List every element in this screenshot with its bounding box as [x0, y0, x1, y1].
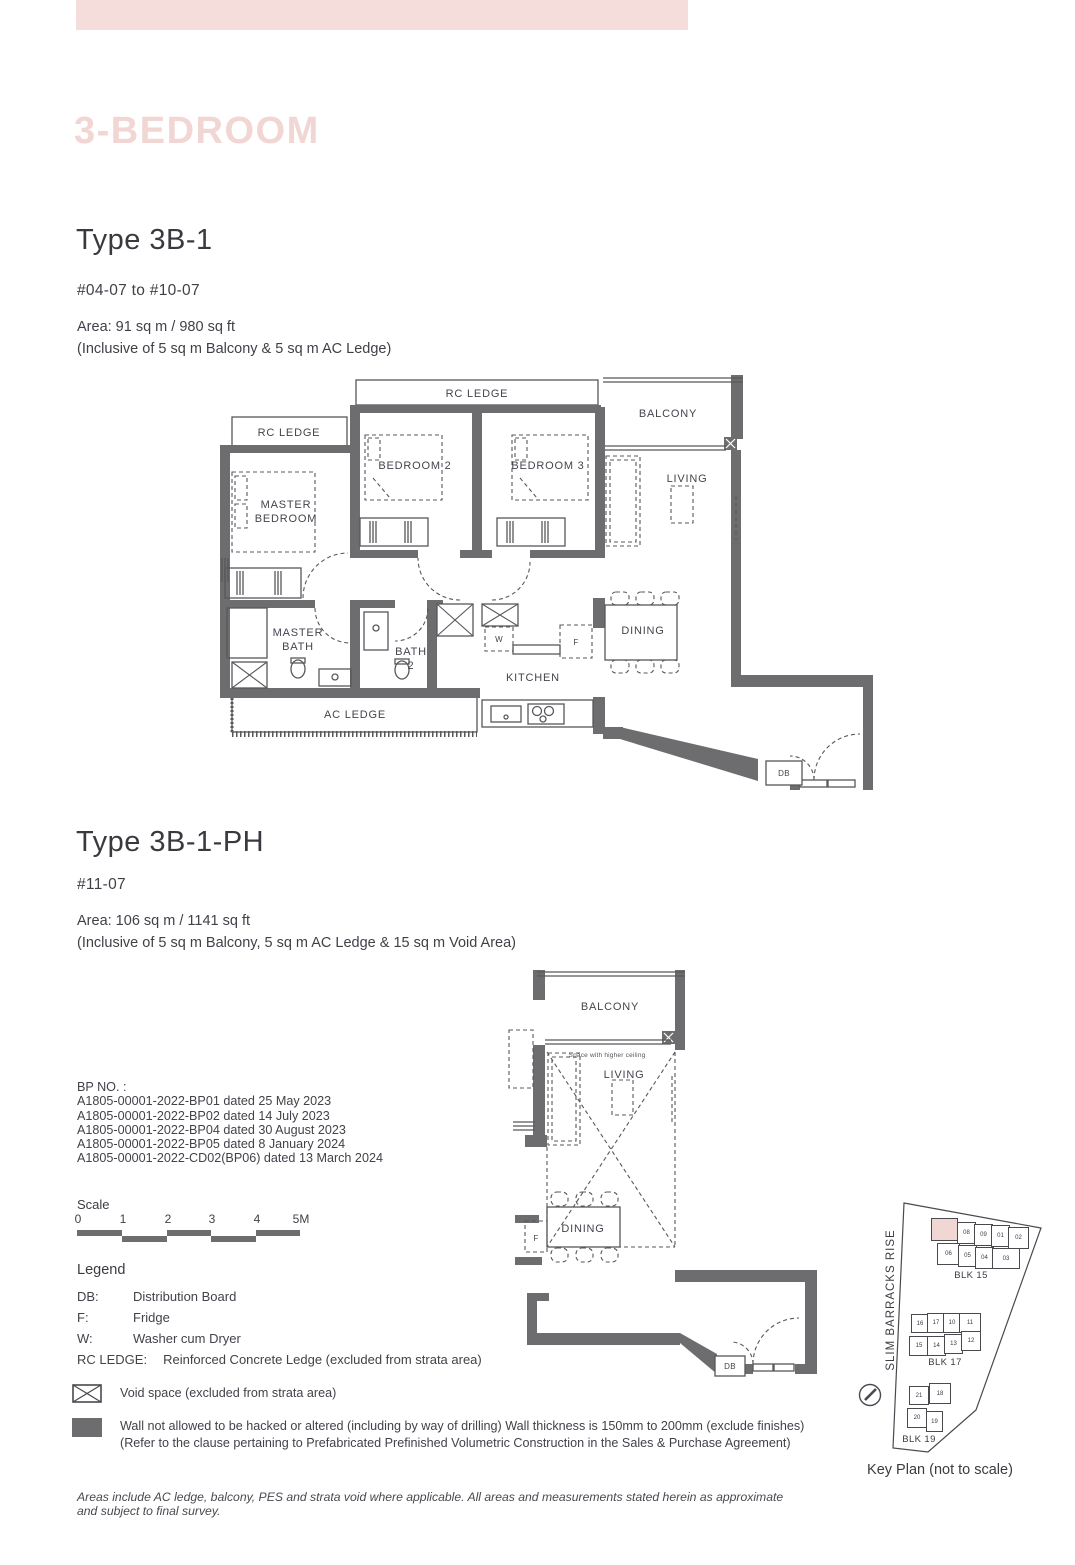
header-accent-band: [76, 0, 688, 30]
legend-heading: Legend: [77, 1262, 482, 1278]
unit2-type-title: Type 3B-1-PH: [76, 826, 264, 859]
footer-disclaimer: Areas include AC ledge, balcony, PES and…: [77, 1490, 797, 1518]
plan1-label-dining: DINING: [621, 625, 664, 637]
plan2-labels: BALCONY Space with higher ceiling LIVING…: [533, 1001, 735, 1371]
bp-list: BP NO. : A1805-00001-2022-BP01 dated 25 …: [77, 1080, 383, 1166]
unit1-levels: #04-07 to #10-07: [77, 282, 200, 300]
keyplan-street-label: SLIM BARRACKS RISE: [885, 1205, 903, 1395]
unit1-type-title: Type 3B-1: [76, 224, 213, 257]
plan2-windows: [513, 972, 794, 1371]
unit2-area-line2: (Inclusive of 5 sq m Balcony, 5 sq m AC …: [77, 932, 516, 954]
plan1-label-mbath2: BATH: [282, 641, 314, 653]
plan1-label-kitchen: KITCHEN: [506, 672, 560, 684]
unit1-area-line1: Area: 91 sq m / 980 sq ft: [77, 316, 391, 338]
bp-item: A1805-00001-2022-BP02 dated 14 July 2023: [77, 1109, 383, 1123]
bp-item: A1805-00001-2022-BP04 dated 30 August 20…: [77, 1123, 383, 1137]
plan1-label-rc-ledge-top: RC LEDGE: [446, 388, 509, 400]
scale-tick: 3: [199, 1212, 225, 1226]
wall-note-text: Wall not allowed to be hacked or altered…: [120, 1418, 804, 1452]
keyplan-unit: 03: [992, 1248, 1020, 1269]
wall-note-line1: Wall not allowed to be hacked or altered…: [120, 1418, 804, 1435]
scale-segment: [256, 1230, 300, 1236]
void-space-icon: [72, 1384, 102, 1403]
void-note-row: Void space (excluded from strata area): [72, 1384, 336, 1403]
floorplan-3b1-ph: BALCONY Space with higher ceiling LIVING…: [495, 960, 845, 1400]
keyplan-blk19-label: BLK 19: [891, 1434, 947, 1445]
plan1-label-ac-ledge: AC LEDGE: [324, 709, 386, 721]
keyplan-blk15-label: BLK 15: [943, 1270, 999, 1281]
legend-row: W: Washer cum Dryer: [77, 1328, 482, 1349]
legend-row: DB: Distribution Board: [77, 1286, 482, 1307]
plan1-label-washer: W: [495, 635, 503, 644]
plan1-label-db: DB: [778, 769, 790, 778]
scale-tick: 4: [244, 1212, 270, 1226]
keyplan-unit: 06: [937, 1243, 960, 1265]
plan2-walls: [515, 970, 817, 1374]
scale-segment: [77, 1230, 122, 1236]
plan1-label-rc-ledge-left: RC LEDGE: [258, 427, 321, 439]
legend-value: Reinforced Concrete Ledge (excluded from…: [163, 1349, 482, 1370]
plan1-label-fridge: F: [573, 638, 578, 647]
plan1-label-bedroom3: BEDROOM 3: [511, 460, 584, 472]
scale-bar: Scale 0 1 2 3 4 5M: [77, 1197, 397, 1247]
plan1-void-boxes: [232, 604, 518, 688]
scale-segment: [122, 1236, 167, 1242]
keyplan-caption: Key Plan (not to scale): [855, 1462, 1025, 1478]
scale-segment: [211, 1236, 256, 1242]
legend: Legend DB: Distribution Board F: Fridge …: [77, 1262, 482, 1370]
wall-note-line2: (Refer to the clause pertaining to Prefa…: [120, 1435, 804, 1452]
plan1-label-mbath1: MASTER: [273, 627, 324, 639]
plan1-label-bath2a: BATH: [395, 646, 427, 658]
scale-tick: 0: [65, 1212, 91, 1226]
scale-segment: [167, 1230, 211, 1236]
unit2-area-line1: Area: 106 sq m / 1141 sq ft: [77, 910, 516, 932]
legend-row: F: Fridge: [77, 1307, 482, 1328]
plan2-label-living: LIVING: [604, 1069, 645, 1081]
north-arrow-icon: [857, 1382, 883, 1408]
keyplan-unit: 11: [959, 1313, 981, 1333]
legend-value: Distribution Board: [133, 1286, 236, 1307]
legend-value: Washer cum Dryer: [133, 1328, 241, 1349]
keyplan-unit: 19: [926, 1411, 943, 1432]
unit1-area-line2: (Inclusive of 5 sq m Balcony & 5 sq m AC…: [77, 338, 391, 360]
legend-key: DB:: [77, 1286, 133, 1307]
plan2-label-fridge: F: [533, 1234, 538, 1243]
scale-tick: 1: [110, 1212, 136, 1226]
scale-tick: 2: [155, 1212, 181, 1226]
plan1-label-balcony: BALCONY: [639, 408, 697, 420]
plan2-label-db: DB: [724, 1362, 736, 1371]
scale-label: Scale: [77, 1197, 397, 1212]
bp-heading: BP NO. :: [77, 1080, 383, 1094]
keyplan-unit: 15: [909, 1336, 929, 1356]
scale-tick: 5M: [288, 1212, 314, 1226]
plan1-door-arcs: [303, 553, 860, 780]
brochure-page: 3-BEDROOM Type 3B-1 #04-07 to #10-07 Are…: [0, 0, 1075, 1565]
legend-key: F:: [77, 1307, 133, 1328]
plan2-label-dining: DINING: [561, 1223, 604, 1235]
legend-key: RC LEDGE:: [77, 1349, 147, 1370]
void-note-text: Void space (excluded from strata area): [120, 1384, 336, 1403]
keyplan-unit: 18: [929, 1383, 951, 1404]
plan1-label-master2: BEDROOM: [255, 513, 317, 525]
plan1-label-master1: MASTER: [261, 499, 312, 511]
keyplan-unit: 21: [909, 1386, 929, 1405]
plan2-label-ceiling-note: Space with higher ceiling: [569, 1052, 646, 1059]
keyplan-unit: 20: [907, 1408, 927, 1428]
key-plan: SLIM BARRACKS RISE 08 09 01 02 06 05 04 …: [845, 1190, 1075, 1490]
bp-item: A1805-00001-2022-BP05 dated 8 January 20…: [77, 1137, 383, 1151]
plan2-label-balcony: BALCONY: [581, 1001, 639, 1013]
floorplan-3b1: RC LEDGE RC LEDGE BALCONY BEDROOM 2 BEDR…: [215, 368, 885, 808]
wall-swatch-icon: [72, 1418, 102, 1437]
legend-key: W:: [77, 1328, 133, 1349]
unit2-levels: #11-07: [77, 876, 126, 894]
plan1-label-bedroom2: BEDROOM 2: [378, 460, 451, 472]
unit2-area: Area: 106 sq m / 1141 sq ft (Inclusive o…: [77, 910, 516, 954]
keyplan-unit-highlight: [931, 1218, 958, 1241]
unit1-area: Area: 91 sq m / 980 sq ft (Inclusive of …: [77, 316, 391, 360]
legend-row: RC LEDGE: Reinforced Concrete Ledge (exc…: [77, 1349, 482, 1370]
bp-item: A1805-00001-2022-CD02(BP06) dated 13 Mar…: [77, 1151, 383, 1165]
plan2-dashed: [509, 1030, 799, 1364]
bp-item: A1805-00001-2022-BP01 dated 25 May 2023: [77, 1094, 383, 1108]
section-title: 3-BEDROOM: [74, 110, 320, 153]
keyplan-blk17-label: BLK 17: [917, 1357, 973, 1368]
plan1-label-living: LIVING: [667, 473, 708, 485]
legend-value: Fridge: [133, 1307, 170, 1328]
plan1-label-bath2b: 2: [408, 660, 415, 672]
keyplan-unit: 02: [1008, 1227, 1029, 1249]
keyplan-unit: 12: [961, 1331, 981, 1351]
